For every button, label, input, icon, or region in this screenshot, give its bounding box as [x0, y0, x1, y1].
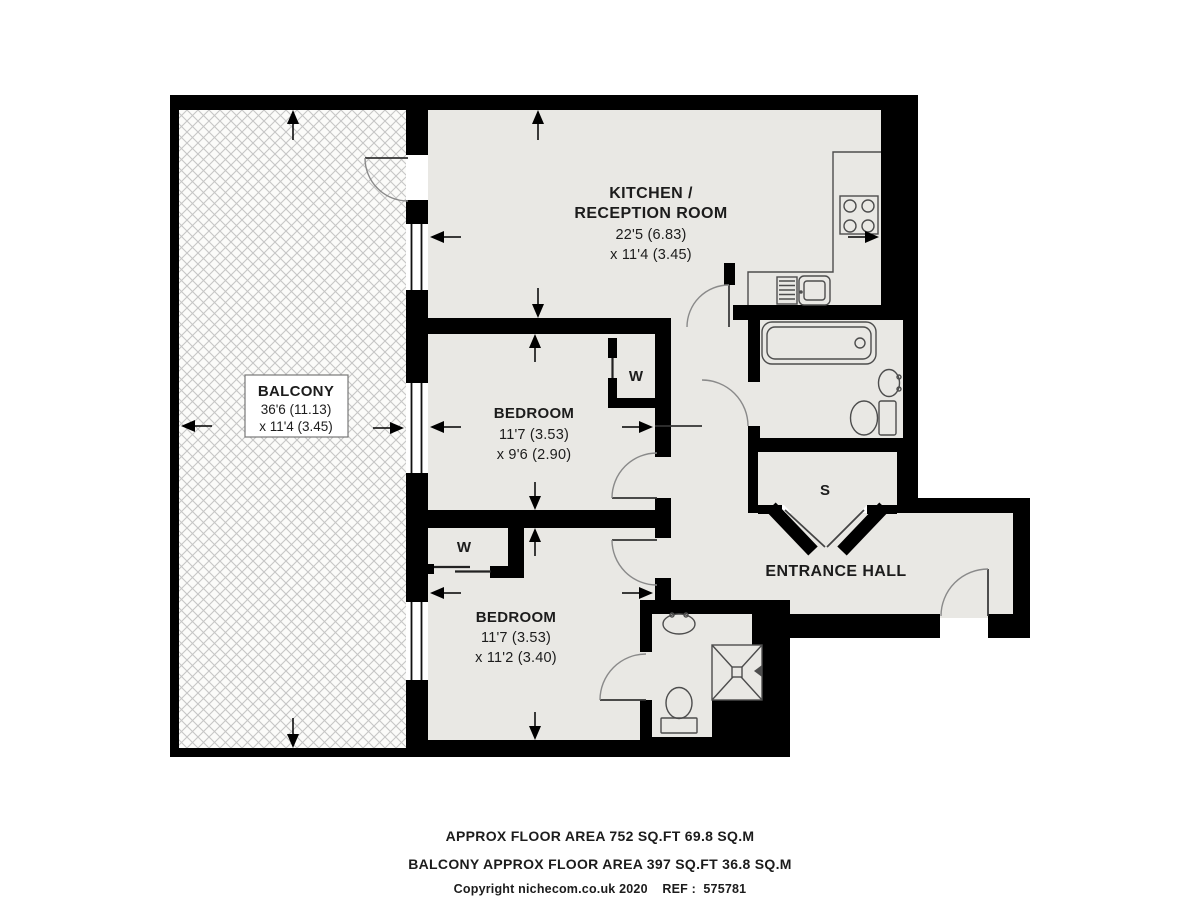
bedroom1-dim1: 11'7 (3.53) — [499, 427, 569, 443]
copyright-text: Copyright nichecom.co.uk 2020 REF : 5757… — [454, 882, 747, 896]
balcony-dim1: 36'6 (11.13) — [261, 402, 332, 417]
kitchen-window — [406, 224, 428, 290]
balcony-area-text: BALCONY APPROX FLOOR AREA 397 SQ.FT 36.8… — [408, 856, 792, 872]
bedroom2-label: BEDROOM — [476, 609, 556, 626]
kitchen-label-line1: KITCHEN / — [609, 185, 693, 202]
kitchen-dim1: 22'5 (6.83) — [615, 227, 686, 243]
balcony-door-gap — [406, 155, 428, 200]
wardrobe2-label: W — [457, 539, 472, 556]
kitchen-dim2: x 11'4 (3.45) — [610, 247, 692, 263]
storage-label: S — [820, 482, 830, 499]
footer: APPROX FLOOR AREA 752 SQ.FT 69.8 SQ.M BA… — [408, 828, 792, 896]
wardrobe1-label: W — [629, 368, 644, 385]
bedroom1-window — [406, 383, 428, 473]
kitchen-label-line2: RECEPTION ROOM — [574, 205, 727, 222]
floorplan: BALCONY 36'6 (11.13) x 11'4 (3.45) KITCH… — [0, 0, 1200, 900]
bedroom1-label: BEDROOM — [494, 405, 574, 422]
bedroom1-dim2: x 9'6 (2.90) — [497, 447, 571, 463]
bedroom2-window — [406, 602, 428, 680]
balcony-label: BALCONY — [258, 383, 334, 400]
balcony-dim2: x 11'4 (3.45) — [259, 419, 333, 434]
entrance-hall-label: ENTRANCE HALL — [765, 563, 906, 580]
bedroom2-dim1: 11'7 (3.53) — [481, 630, 551, 646]
floor-area-text: APPROX FLOOR AREA 752 SQ.FT 69.8 SQ.M — [446, 828, 755, 844]
bathroom-door-gap — [748, 382, 760, 426]
bedroom2-dim2: x 11'2 (3.40) — [475, 650, 557, 666]
